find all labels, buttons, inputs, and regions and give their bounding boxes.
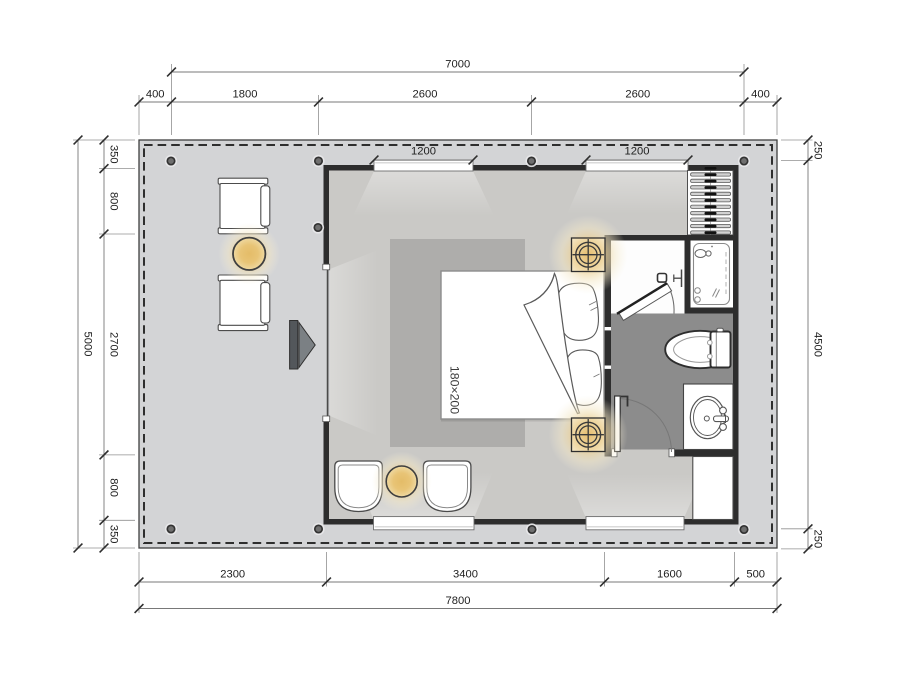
svg-text:350: 350 (108, 525, 120, 544)
svg-text:3400: 3400 (453, 569, 478, 581)
svg-text:250: 250 (812, 141, 824, 160)
svg-text:1200: 1200 (411, 146, 436, 158)
svg-text:7800: 7800 (446, 595, 471, 607)
svg-text:350: 350 (108, 145, 120, 164)
svg-text:400: 400 (146, 89, 165, 101)
svg-text:180×200: 180×200 (448, 366, 462, 414)
svg-text:1600: 1600 (657, 569, 682, 581)
svg-text:2300: 2300 (220, 569, 245, 581)
svg-text:1200: 1200 (625, 146, 650, 158)
svg-text:2700: 2700 (108, 332, 120, 357)
svg-text:2600: 2600 (413, 89, 438, 101)
svg-text:500: 500 (746, 569, 765, 581)
svg-text:7000: 7000 (445, 59, 470, 71)
svg-text:5000: 5000 (82, 332, 94, 357)
svg-text:4500: 4500 (812, 332, 824, 357)
svg-text:250: 250 (812, 530, 824, 549)
svg-text:800: 800 (108, 192, 120, 211)
svg-text:2600: 2600 (625, 89, 650, 101)
svg-text:400: 400 (751, 89, 770, 101)
svg-text:800: 800 (108, 478, 120, 497)
svg-text:1800: 1800 (233, 89, 258, 101)
